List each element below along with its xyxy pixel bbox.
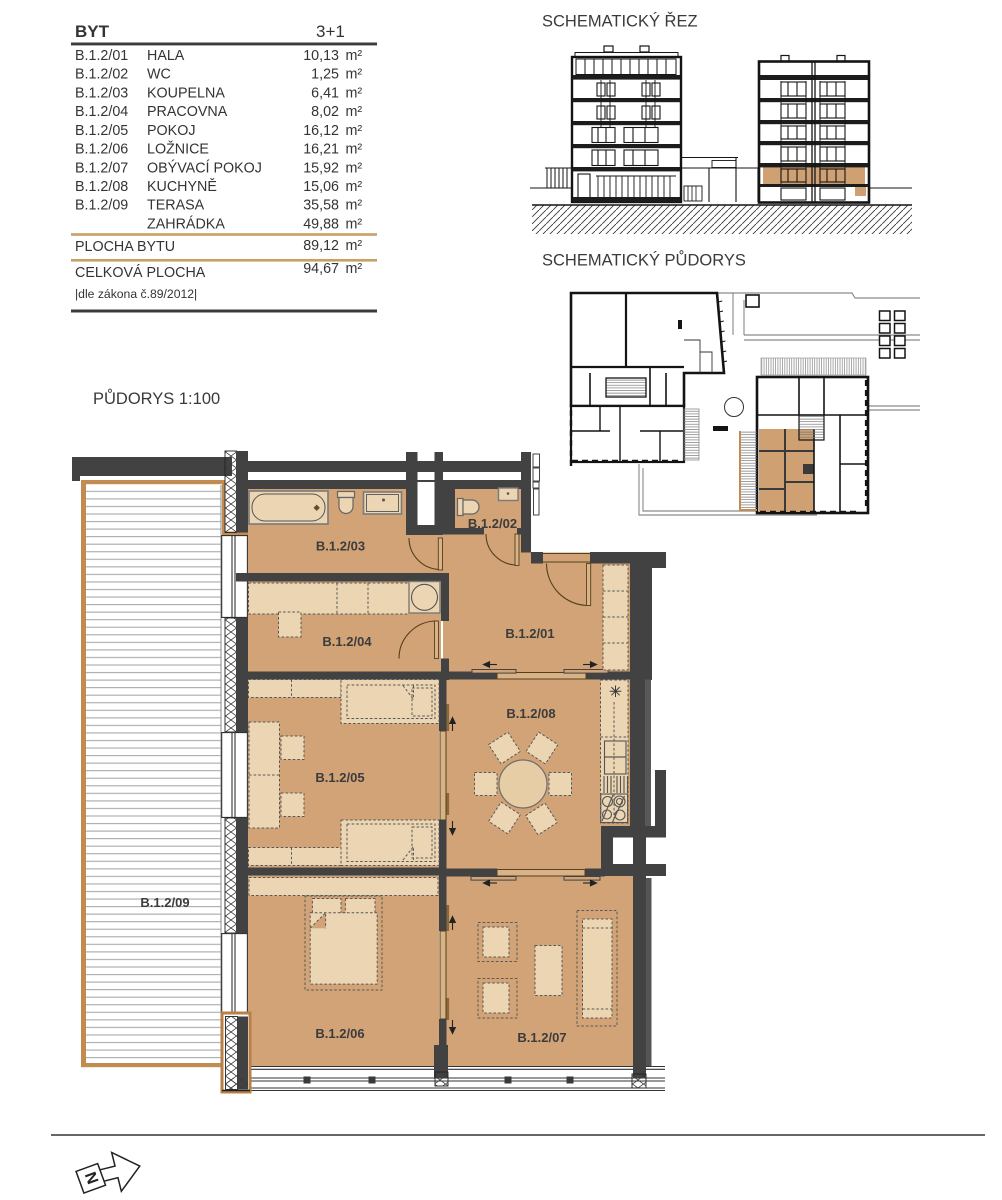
svg-text:m²: m² [346,160,363,176]
svg-text:B.1.2/07: B.1.2/07 [75,160,128,176]
svg-text:49,88: 49,88 [303,216,339,232]
svg-text:B.1.2/04: B.1.2/04 [75,104,128,120]
svg-text:PLOCHA BYTU: PLOCHA BYTU [75,239,175,255]
svg-text:m²: m² [346,142,363,158]
svg-text:m²: m² [346,198,363,214]
svg-text:|dle zákona č.89/2012|: |dle zákona č.89/2012| [75,287,197,301]
svg-text:16,12: 16,12 [303,123,339,139]
svg-text:B.1.2/07: B.1.2/07 [517,1030,566,1045]
svg-text:BYT: BYT [75,22,110,41]
svg-text:B.1.2/06: B.1.2/06 [315,1026,364,1041]
svg-text:m²: m² [346,104,363,120]
svg-text:m²: m² [346,261,363,277]
svg-text:1,25: 1,25 [311,67,339,83]
svg-text:m²: m² [346,85,363,101]
svg-text:B.1.2/05: B.1.2/05 [75,123,128,139]
svg-text:KOUPELNA: KOUPELNA [147,85,225,101]
svg-text:16,21: 16,21 [303,142,339,158]
svg-text:B.1.2/01: B.1.2/01 [75,48,128,64]
svg-text:B.1.2/08: B.1.2/08 [506,706,555,721]
svg-text:HALA: HALA [147,48,185,64]
svg-text:LOŽNICE: LOŽNICE [147,141,209,158]
svg-text:B.1.2/06: B.1.2/06 [75,142,128,158]
svg-text:PŮDORYS 1:100: PŮDORYS 1:100 [93,389,220,408]
svg-text:B.1.2/02: B.1.2/02 [75,67,128,83]
svg-text:B.1.2/09: B.1.2/09 [140,895,189,910]
svg-text:15,92: 15,92 [303,160,339,176]
svg-text:SCHEMATICKÝ PŮDORYS: SCHEMATICKÝ PŮDORYS [542,251,746,270]
svg-text:m²: m² [346,238,363,254]
svg-text:89,12: 89,12 [303,238,339,254]
svg-text:CELKOVÁ PLOCHA: CELKOVÁ PLOCHA [75,264,206,281]
svg-text:B.1.2/09: B.1.2/09 [75,198,128,214]
svg-text:B.1.2/03: B.1.2/03 [316,539,365,554]
svg-text:m²: m² [346,179,363,195]
svg-text:OBÝVACÍ POKOJ: OBÝVACÍ POKOJ [147,159,262,176]
svg-text:15,06: 15,06 [303,179,339,195]
svg-text:35,58: 35,58 [303,198,339,214]
svg-text:B.1.2/03: B.1.2/03 [75,85,128,101]
svg-text:m²: m² [346,216,363,232]
svg-text:B.1.2/05: B.1.2/05 [315,770,364,785]
svg-text:ZAHRÁDKA: ZAHRÁDKA [147,215,225,232]
svg-text:94,67: 94,67 [303,261,339,277]
svg-text:6,41: 6,41 [311,85,339,101]
svg-text:POKOJ: POKOJ [147,123,195,139]
svg-text:TERASA: TERASA [147,198,205,214]
svg-text:WC: WC [147,67,171,83]
svg-text:B.1.2/04: B.1.2/04 [322,634,372,649]
svg-text:B.1.2/08: B.1.2/08 [75,179,128,195]
svg-text:B.1.2/01: B.1.2/01 [505,626,554,641]
svg-text:10,13: 10,13 [303,48,339,64]
svg-text:SCHEMATICKÝ ŘEZ: SCHEMATICKÝ ŘEZ [542,12,698,31]
svg-text:KUCHYNĚ: KUCHYNĚ [147,178,217,195]
svg-text:PRACOVNA: PRACOVNA [147,104,228,120]
svg-text:m²: m² [346,48,363,64]
svg-text:m²: m² [346,67,363,83]
svg-text:B.1.2/02: B.1.2/02 [468,516,517,531]
svg-text:8,02: 8,02 [311,104,339,120]
svg-text:3+1: 3+1 [316,22,345,41]
svg-text:m²: m² [346,123,363,139]
